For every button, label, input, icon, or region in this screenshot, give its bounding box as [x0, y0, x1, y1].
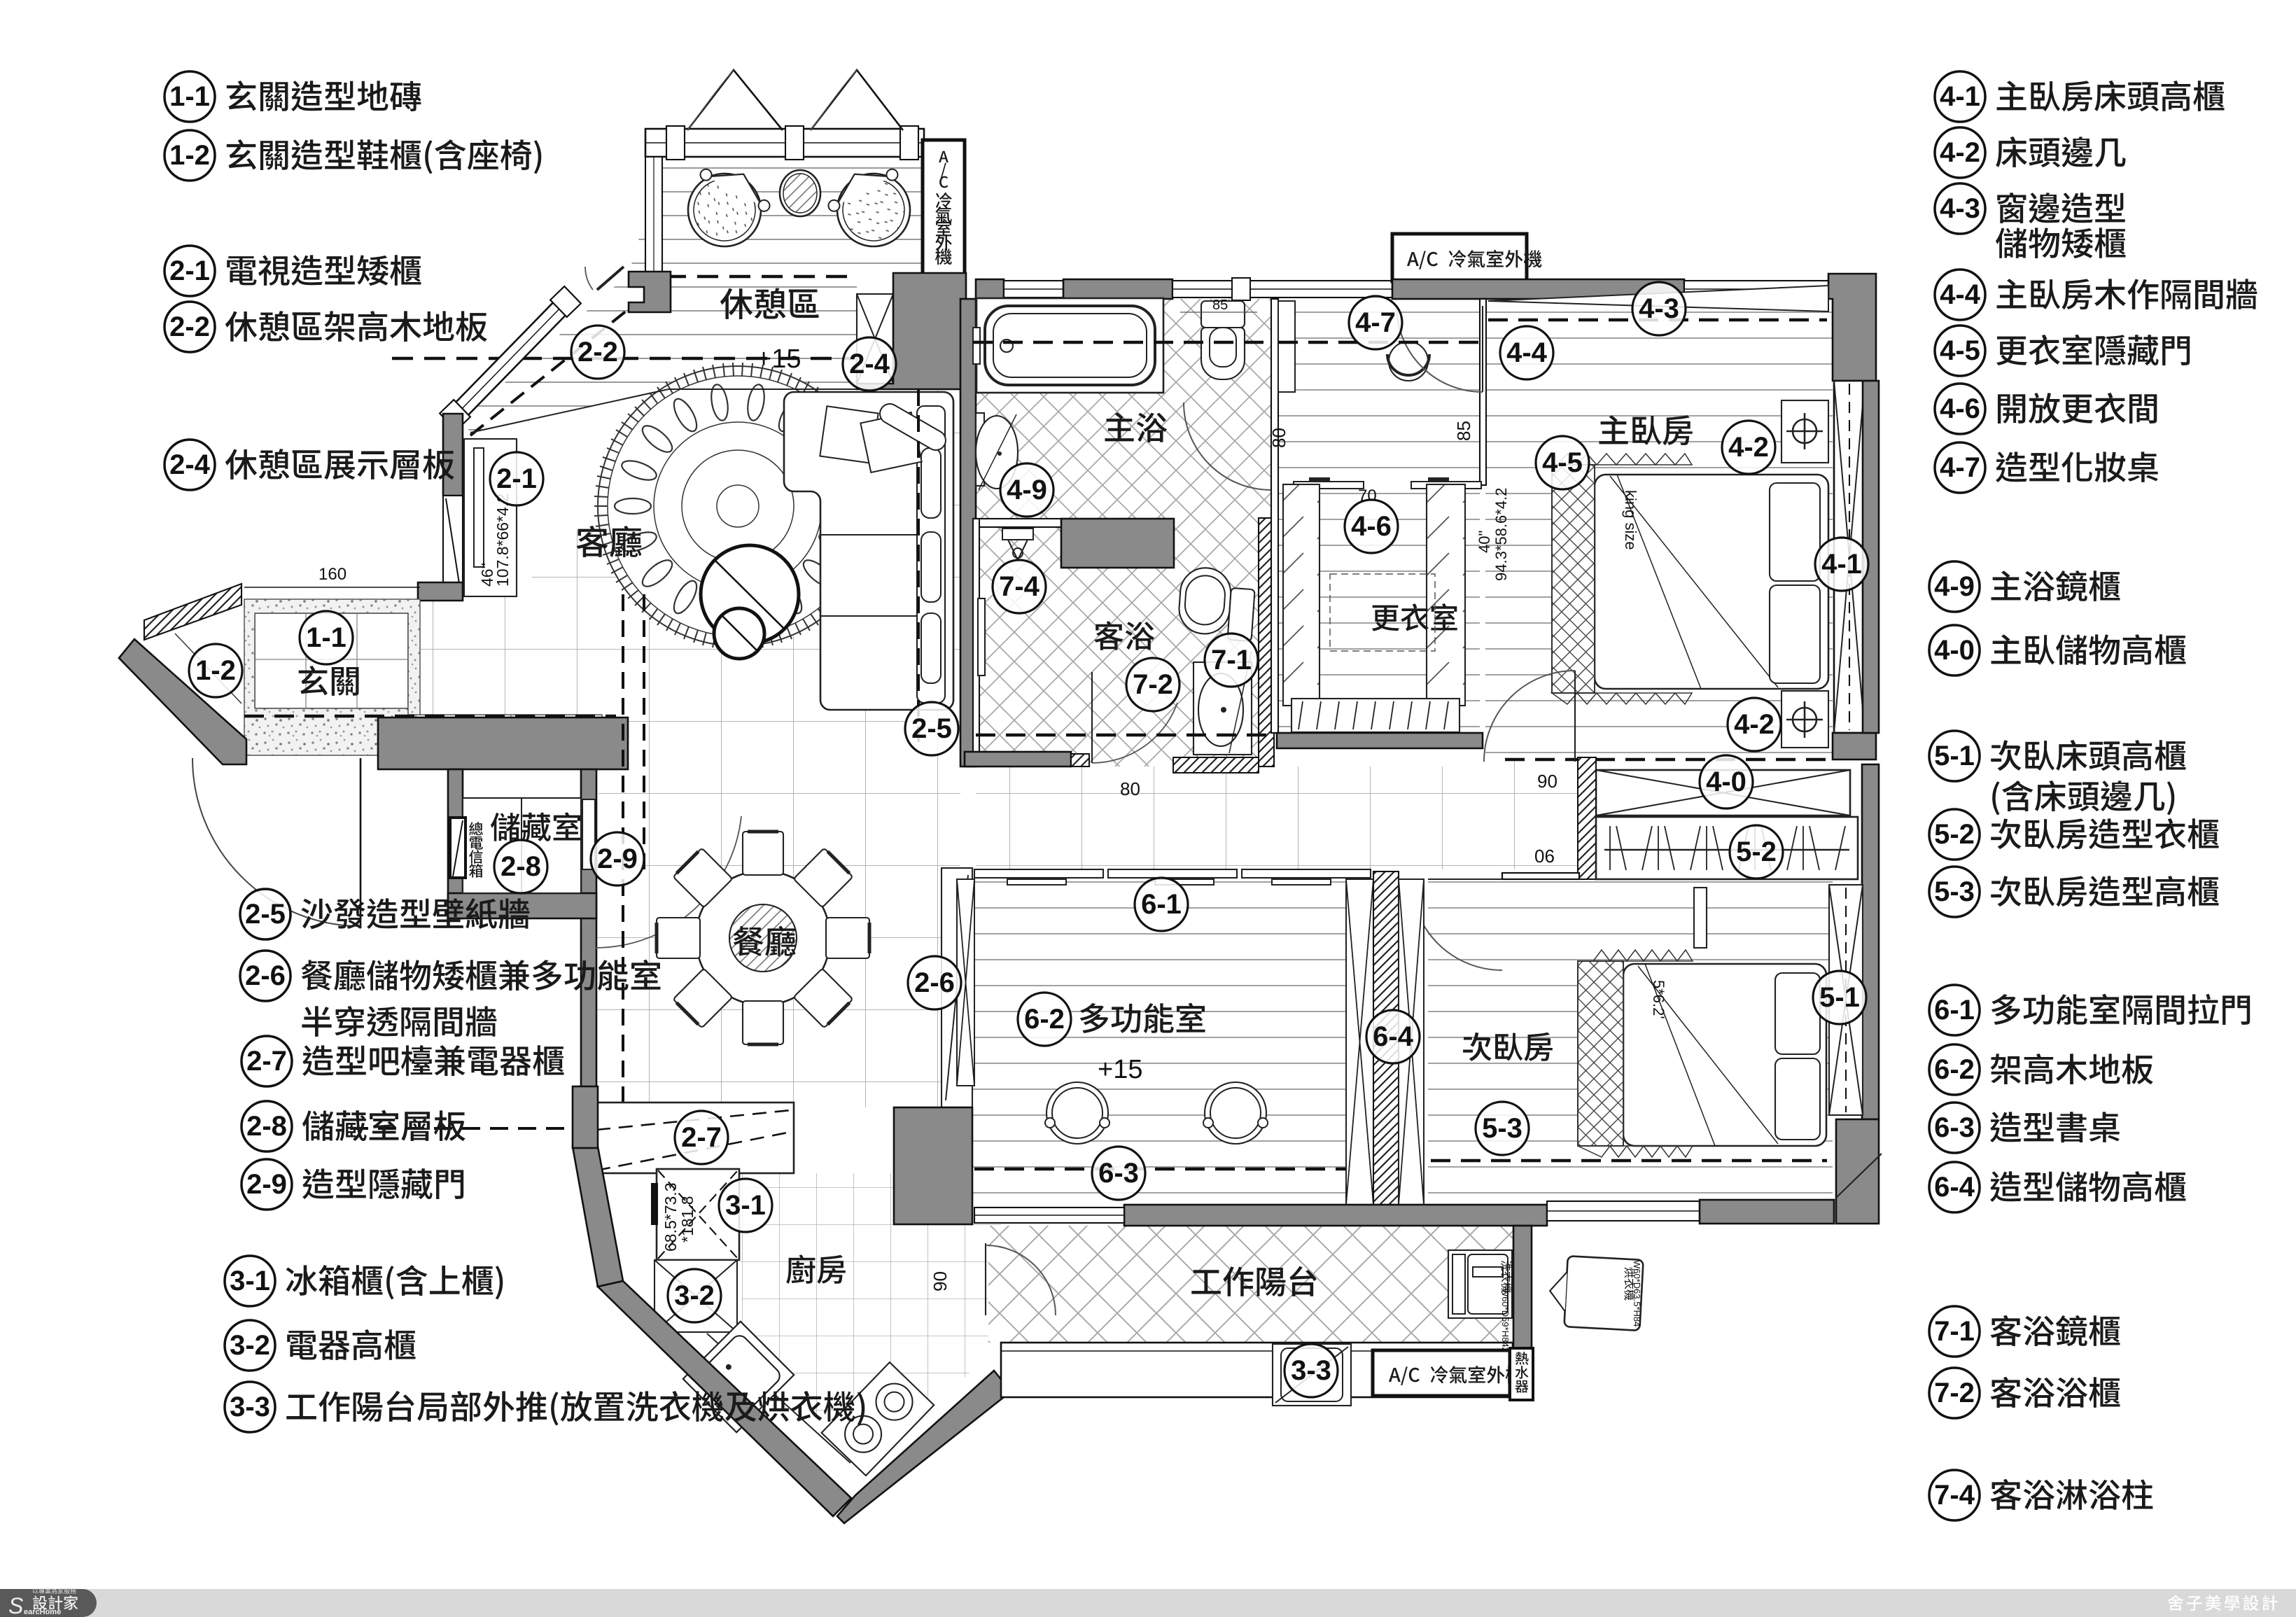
svg-text:4-2: 4-2	[1734, 709, 1774, 740]
svg-text:6-4: 6-4	[1934, 1172, 1975, 1203]
svg-text:68.5*73.3: 68.5*73.3	[661, 1183, 680, 1252]
svg-text:1-2: 1-2	[195, 655, 236, 686]
svg-text:W60*D63.5*H84: W60*D63.5*H84	[1632, 1260, 1642, 1326]
svg-text:+15: +15	[1098, 1055, 1142, 1084]
svg-text:4-1: 4-1	[1821, 549, 1862, 580]
svg-text:2-4: 2-4	[169, 449, 211, 480]
svg-text:6-4: 6-4	[1373, 1021, 1414, 1052]
svg-text:3-3: 3-3	[230, 1392, 270, 1422]
svg-text:4-3: 4-3	[1940, 193, 1980, 224]
svg-text:85: 85	[1212, 297, 1228, 313]
svg-text:4-2: 4-2	[1940, 137, 1980, 168]
svg-text:6-3: 6-3	[1934, 1112, 1975, 1143]
svg-text:107.8*66*4.2: 107.8*66*4.2	[493, 493, 512, 587]
svg-text:160: 160	[318, 565, 346, 584]
svg-text:7-4: 7-4	[999, 571, 1040, 602]
svg-text:4-3: 4-3	[1639, 293, 1679, 324]
svg-text:5-1: 5-1	[1934, 741, 1975, 771]
svg-text:90: 90	[1537, 771, 1557, 792]
svg-text:4-0: 4-0	[1706, 766, 1746, 797]
svg-text:80: 80	[1120, 778, 1140, 799]
svg-text:4-9: 4-9	[1007, 475, 1047, 505]
svg-text:4-2: 4-2	[1728, 432, 1769, 463]
svg-text:7-4: 7-4	[1934, 1480, 1975, 1511]
svg-text:W60*D59*H842: W60*D59*H842	[1500, 1288, 1511, 1352]
svg-text:*181.8: *181.8	[678, 1196, 696, 1242]
svg-text:4-0: 4-0	[1934, 635, 1975, 666]
svg-text:4-1: 4-1	[1940, 81, 1980, 112]
svg-text:40": 40"	[1476, 531, 1493, 553]
svg-text:3-2: 3-2	[230, 1330, 270, 1361]
svg-text:7-1: 7-1	[1211, 645, 1252, 675]
svg-text:2-2: 2-2	[577, 337, 618, 367]
svg-text:4-5: 4-5	[1940, 335, 1980, 366]
svg-text:6-3: 6-3	[1098, 1158, 1139, 1189]
svg-text:2-5: 2-5	[245, 899, 286, 930]
svg-text:3-3: 3-3	[1291, 1355, 1331, 1386]
svg-text:2-8: 2-8	[246, 1111, 287, 1142]
svg-text:5-3: 5-3	[1482, 1113, 1522, 1144]
svg-text:2-6: 2-6	[245, 960, 286, 991]
svg-text:4-6: 4-6	[1351, 511, 1392, 542]
svg-text:06: 06	[1534, 846, 1555, 867]
svg-text:7-2: 7-2	[1934, 1378, 1975, 1408]
svg-text:2-7: 2-7	[681, 1122, 722, 1153]
svg-text:1-1: 1-1	[169, 81, 210, 112]
svg-text:3-2: 3-2	[674, 1280, 715, 1311]
svg-text:6-2: 6-2	[1024, 1004, 1065, 1035]
svg-text:2-9: 2-9	[597, 843, 638, 874]
svg-text:2-4: 2-4	[849, 349, 890, 379]
svg-text:5-1: 5-1	[1819, 982, 1860, 1013]
svg-text:6-2: 6-2	[1934, 1054, 1975, 1085]
svg-text:4-9: 4-9	[1934, 571, 1975, 602]
svg-text:6-1: 6-1	[1934, 995, 1975, 1025]
svg-text:2-5: 2-5	[911, 713, 952, 744]
svg-text:4-7: 4-7	[1355, 307, 1396, 338]
svg-text:7-2: 7-2	[1133, 669, 1173, 700]
svg-text:S: S	[8, 1593, 23, 1617]
svg-text:2-8: 2-8	[500, 851, 541, 882]
svg-text:2-7: 2-7	[246, 1046, 287, 1077]
svg-text:2-1: 2-1	[169, 255, 210, 286]
svg-text:以專業為家服務: 以專業為家服務	[32, 1587, 76, 1595]
svg-text:5*6.2': 5*6.2'	[1650, 980, 1667, 1019]
svg-text:king size: king size	[1622, 490, 1639, 550]
svg-text:2-6: 2-6	[914, 967, 955, 998]
svg-text:3-1: 3-1	[725, 1190, 766, 1221]
svg-text:4-4: 4-4	[1940, 279, 1981, 310]
svg-text:4-7: 4-7	[1940, 452, 1980, 483]
svg-text:90: 90	[930, 1271, 951, 1291]
svg-text:2-1: 2-1	[496, 463, 537, 494]
svg-text:3-1: 3-1	[230, 1266, 270, 1296]
svg-text:1-1: 1-1	[306, 622, 346, 653]
svg-text:80: 80	[1268, 428, 1289, 448]
svg-text:2-2: 2-2	[169, 311, 210, 342]
svg-text:4-4: 4-4	[1506, 337, 1548, 368]
svg-text:5-3: 5-3	[1934, 876, 1975, 907]
svg-text:1-2: 1-2	[169, 140, 210, 171]
svg-text:7-1: 7-1	[1934, 1316, 1975, 1347]
svg-text:earcHome: earcHome	[24, 1608, 61, 1616]
svg-text:85: 85	[1453, 421, 1474, 441]
svg-text:2-9: 2-9	[246, 1169, 287, 1200]
svg-text:5-2: 5-2	[1736, 836, 1777, 867]
svg-text:4-6: 4-6	[1940, 393, 1980, 424]
svg-text:5-2: 5-2	[1934, 819, 1975, 850]
svg-text:4-5: 4-5	[1542, 447, 1583, 478]
svg-text:94.3*58.6*4.2: 94.3*58.6*4.2	[1492, 488, 1510, 581]
svg-text:6-1: 6-1	[1141, 889, 1182, 920]
